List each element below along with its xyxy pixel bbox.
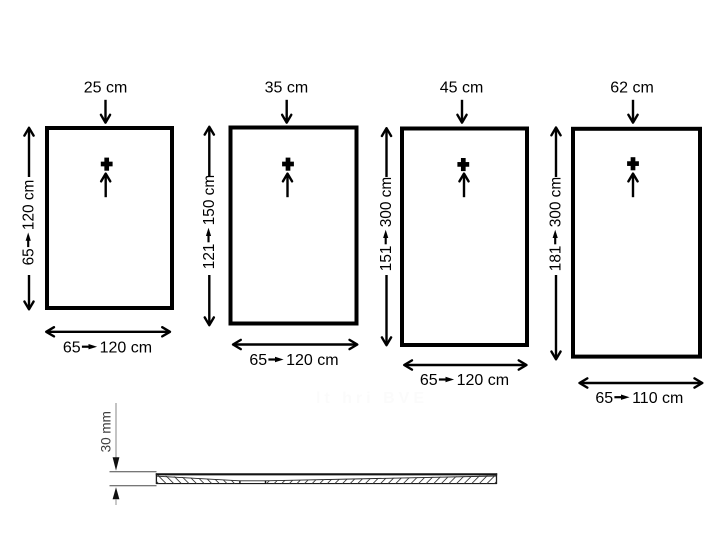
- svg-text:110 cm: 110 cm: [632, 390, 683, 407]
- svg-text:181: 181: [548, 246, 565, 272]
- svg-text:300 cm: 300 cm: [548, 177, 565, 227]
- svg-text:65: 65: [420, 372, 438, 389]
- svg-text:120 cm: 120 cm: [457, 372, 509, 389]
- svg-text:300 cm: 300 cm: [378, 177, 395, 227]
- svg-text:35 cm: 35 cm: [265, 80, 309, 97]
- svg-text:lt hri BVE: lt hri BVE: [316, 390, 428, 407]
- svg-text:150 cm: 150 cm: [201, 175, 218, 225]
- svg-text:65: 65: [249, 352, 267, 369]
- svg-text:65: 65: [21, 248, 38, 265]
- svg-text:121: 121: [201, 244, 218, 270]
- svg-text:25 cm: 25 cm: [84, 80, 128, 97]
- svg-text:30 mm: 30 mm: [98, 411, 113, 452]
- svg-text:62 cm: 62 cm: [610, 80, 654, 97]
- svg-text:120 cm: 120 cm: [100, 339, 152, 356]
- svg-text:120 cm: 120 cm: [286, 352, 338, 369]
- svg-text:65: 65: [595, 390, 613, 407]
- svg-text:45 cm: 45 cm: [440, 80, 484, 97]
- svg-text:120 cm: 120 cm: [21, 180, 38, 230]
- svg-text:151: 151: [378, 246, 395, 272]
- svg-text:65: 65: [63, 339, 81, 356]
